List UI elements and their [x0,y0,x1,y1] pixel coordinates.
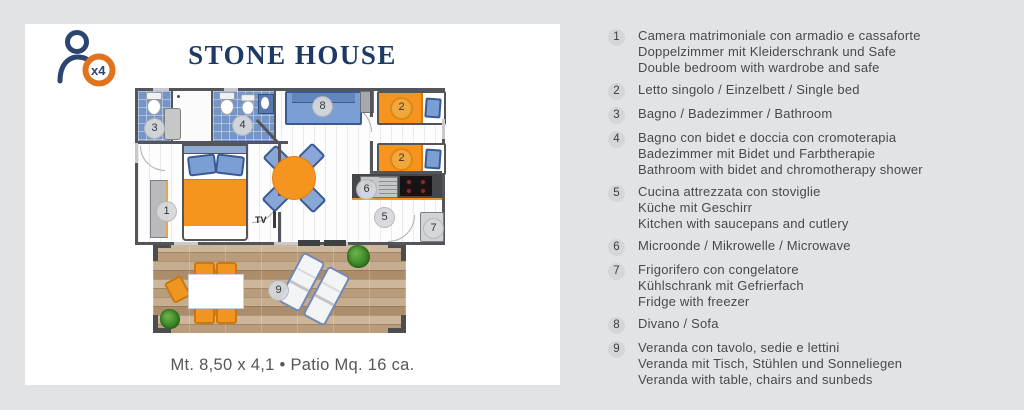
marker-bathroom-bidet: 4 [232,115,253,136]
legend-number-badge: 3 [608,107,625,124]
pillow [424,97,441,118]
deck-corner [153,243,171,261]
single-bed: 2 [377,91,446,125]
window [174,242,198,245]
door-arc [140,146,165,171]
veranda-deck: 9 [153,243,406,333]
legend-line: Frigorifero con congelatore [638,262,804,278]
headboard [184,146,246,154]
window [224,88,238,91]
toilet-icon [218,92,236,116]
legend-item: 7 Frigorifero con congelatore Kühlschran… [608,262,1020,310]
legend-line: Double bedroom with wardrobe and safe [638,60,921,76]
marker-microwave: 6 [356,179,377,200]
legend-line: Doppelzimmer mit Kleiderschrank und Safe [638,44,921,60]
pillow [424,148,441,169]
legend-number-badge: 2 [608,83,625,100]
legend-item: 3 Bagno / Badezimmer / Bathroom [608,106,1020,124]
floorplan-card: x4 STONE HOUSE 9 [25,24,560,385]
deck-corner [388,315,406,333]
legend-line: Veranda with table, chairs and sunbeds [638,372,902,388]
legend-item: 9 Veranda con tavolo, sedie e lettini Ve… [608,340,1020,388]
threshold [324,240,346,246]
window [442,119,445,139]
deck-corner [388,243,406,261]
legend-line: Divano / Sofa [638,316,719,332]
legend-line: Veranda con tavolo, sedie e lettini [638,340,902,356]
legend-number-badge: 6 [608,239,625,256]
house-plan: 1 TV 8 2 2 [135,88,445,245]
blanket [184,179,246,226]
plant [160,309,180,329]
legend-item: 5 Cucina attrezzata con stoviglie Küche … [608,184,1020,232]
window [153,88,169,91]
legend-number-badge: 4 [608,131,625,148]
legend-line: Letto singolo / Einzelbett / Single bed [638,82,860,98]
plant [347,245,370,268]
shower-tray [164,108,181,140]
wall [370,91,373,117]
double-bed [182,144,248,241]
threshold [298,240,320,246]
marker-bedroom: 1 [156,201,177,222]
legend-line: Cucina attrezzata con stoviglie [638,184,849,200]
legend-number-badge: 7 [608,263,625,280]
legend-item: 8 Divano / Sofa [608,316,1020,334]
wall [370,141,373,173]
legend-line: Bagno con bidet e doccia con cromoterapi… [638,130,923,146]
legend-line: Küche mit Geschirr [638,200,849,216]
legend-item: 1 Camera matrimoniale con armadio e cass… [608,28,1020,76]
legend: 1 Camera matrimoniale con armadio e cass… [608,28,1020,388]
legend-line: Microonde / Mikrowelle / Microwave [638,238,851,254]
legend-number-badge: 5 [608,185,625,202]
cabinet-knob [177,95,180,98]
marker-fridge: 7 [423,218,444,239]
pillow [187,153,217,176]
wall [278,212,281,242]
tv-panel [273,211,276,228]
marker-veranda: 9 [268,280,289,301]
legend-line: Kühlschrank mit Gefrierfach [638,278,804,294]
legend-line: Camera matrimoniale con armadio e cassaf… [638,28,921,44]
page-title: STONE HOUSE [25,40,560,71]
page-background: x4 STONE HOUSE 9 [0,0,1024,410]
legend-item: 2 Letto singolo / Einzelbett / Single be… [608,82,1020,100]
legend-line: Fridge with freezer [638,294,804,310]
dining-table [272,156,316,200]
tv-label: TV [255,215,267,225]
dimensions-note: Mt. 8,50 x 4,1 • Patio Mq. 16 ca. [25,356,560,375]
pillow [215,153,245,176]
toilet-icon [145,92,163,116]
legend-number-badge: 1 [608,29,625,46]
marker-bathroom: 3 [144,118,165,139]
legend-line: Bagno / Badezimmer / Bathroom [638,106,832,122]
veranda-table [188,274,244,309]
window [135,143,138,163]
wall [370,171,442,174]
washbasin-bowl [261,97,269,109]
legend-line: Kitchen with saucepans and cutlery [638,216,849,232]
legend-line: Badezimmer mit Bidet und Farbtherapie [638,146,923,162]
legend-item: 6 Microonde / Mikrowelle / Microwave [608,238,1020,256]
marker-single-bed: 2 [390,97,413,120]
legend-number-badge: 9 [608,341,625,358]
bidet-icon [240,94,256,116]
legend-line: Veranda mit Tisch, Stühlen und Sonnelieg… [638,356,902,372]
marker-kitchen: 5 [374,207,395,228]
legend-line: Bathroom with bidet and chromotherapy sh… [638,162,923,178]
legend-number-badge: 8 [608,317,625,334]
marker-sofa: 8 [312,96,333,117]
stove-burners [400,176,432,196]
marker-single-bed: 2 [390,148,413,171]
wall [138,141,288,144]
legend-item: 4 Bagno con bidet e doccia con cromotera… [608,130,1020,178]
